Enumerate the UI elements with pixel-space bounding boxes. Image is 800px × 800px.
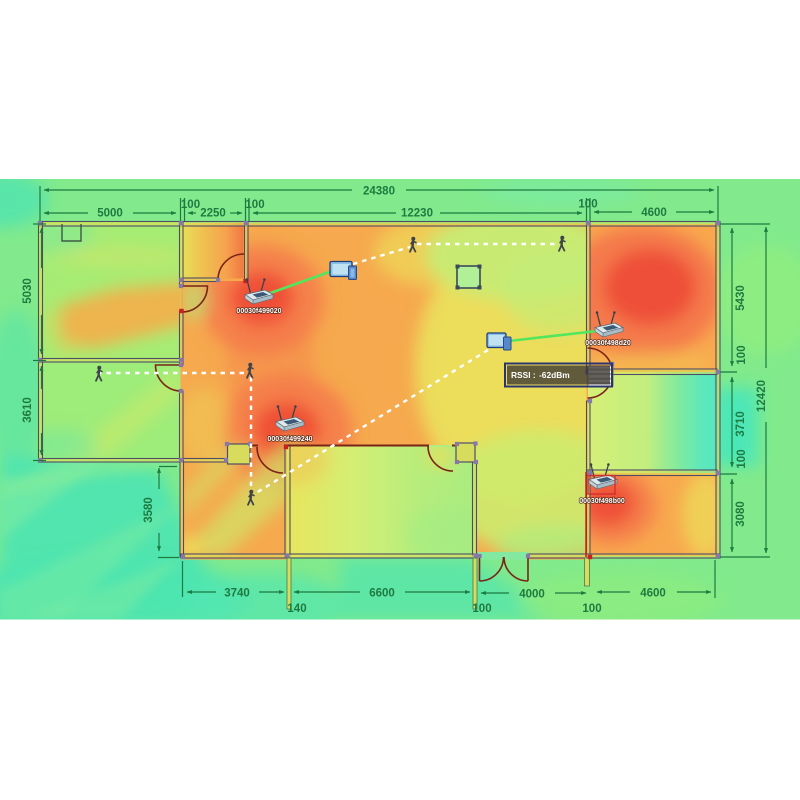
svg-text:100: 100 [472, 603, 491, 615]
svg-text:3580: 3580 [143, 497, 155, 523]
svg-text:12230: 12230 [401, 208, 433, 220]
svg-text:6600: 6600 [369, 588, 395, 600]
svg-text:3080: 3080 [735, 501, 747, 527]
svg-text:100: 100 [736, 345, 748, 364]
svg-text:3740: 3740 [224, 588, 250, 600]
svg-text:140: 140 [287, 603, 306, 615]
svg-text:RSSI :: RSSI : [511, 370, 536, 380]
svg-text:24380: 24380 [363, 186, 395, 198]
svg-text:00030f499020: 00030f499020 [236, 308, 281, 315]
svg-text:4000: 4000 [519, 589, 545, 601]
svg-text:4600: 4600 [641, 207, 667, 219]
svg-text:-62dBm: -62dBm [539, 370, 570, 380]
svg-text:5000: 5000 [97, 208, 123, 220]
svg-text:3710: 3710 [735, 411, 747, 437]
svg-text:5030: 5030 [22, 278, 34, 304]
svg-text:00030f499240: 00030f499240 [267, 436, 312, 443]
svg-text:5430: 5430 [735, 285, 747, 311]
svg-text:100: 100 [245, 199, 264, 211]
svg-text:00030f498b00: 00030f498b00 [579, 498, 625, 505]
svg-text:3610: 3610 [22, 397, 34, 423]
svg-text:100: 100 [578, 199, 597, 211]
svg-text:4600: 4600 [640, 588, 666, 600]
svg-text:100: 100 [181, 199, 200, 211]
svg-text:00030f498d20: 00030f498d20 [585, 340, 631, 347]
svg-text:100: 100 [582, 603, 601, 615]
svg-text:2250: 2250 [200, 208, 226, 220]
svg-text:100: 100 [736, 449, 748, 468]
svg-text:12420: 12420 [756, 380, 768, 412]
